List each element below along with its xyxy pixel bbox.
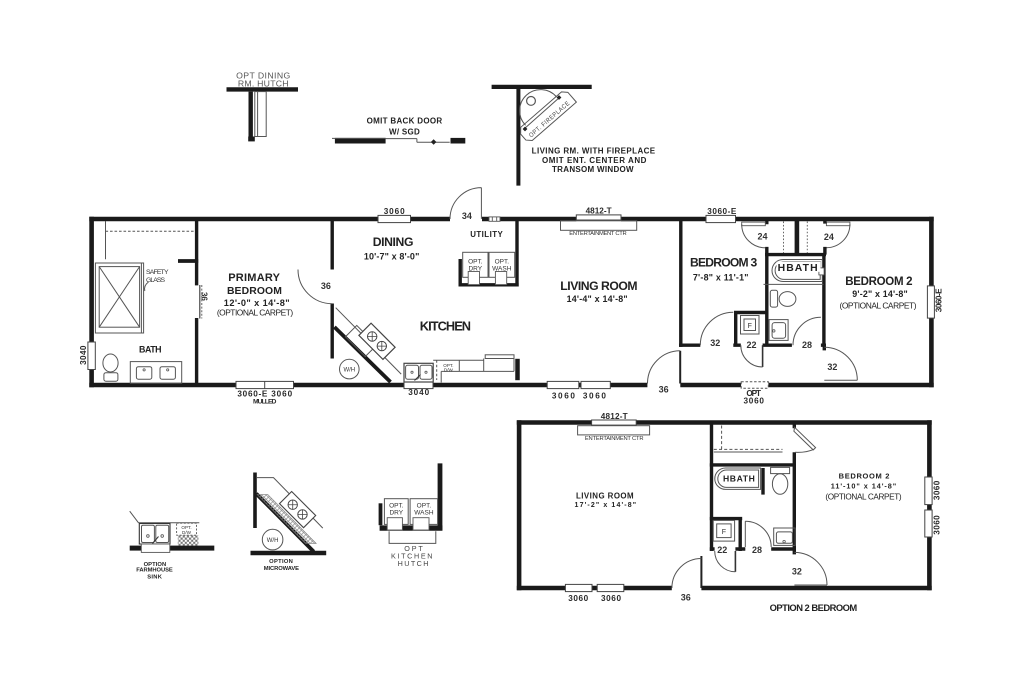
svg-text:DINING: DINING (373, 235, 414, 249)
svg-text:BEDROOM 2: BEDROOM 2 (845, 276, 913, 288)
svg-text:LIVING ROOM: LIVING ROOM (576, 491, 634, 500)
svg-text:OPTION 2 BEDROOM: OPTION 2 BEDROOM (770, 602, 858, 613)
svg-text:3060: 3060 (932, 480, 941, 500)
svg-text:36: 36 (321, 281, 331, 291)
svg-text:HUTCH: HUTCH (398, 559, 429, 568)
svg-text:LIVING RM. WITH FIREPLACE: LIVING RM. WITH FIREPLACE (532, 146, 656, 155)
svg-text:OPT.: OPT. (495, 259, 510, 266)
svg-text:OPT.: OPT. (417, 503, 432, 510)
svg-text:3060: 3060 (552, 391, 575, 400)
svg-text:DRY: DRY (389, 510, 403, 517)
svg-text:(OPTIONAL CARPET): (OPTIONAL CARPET) (840, 301, 917, 311)
svg-text:3060-E: 3060-E (237, 390, 268, 399)
svg-text:GLASS: GLASS (146, 277, 165, 284)
svg-text:28: 28 (802, 340, 812, 350)
svg-text:SINK: SINK (147, 574, 163, 580)
svg-text:(OPTIONAL CARPET): (OPTIONAL CARPET) (217, 308, 294, 318)
svg-text:SAFETY: SAFETY (146, 269, 169, 276)
svg-text:OPTION: OPTION (269, 559, 293, 565)
svg-text:32: 32 (827, 362, 837, 372)
svg-text:ENTERTAINMENT CTR: ENTERTAINMENT CTR (569, 231, 626, 237)
svg-text:F: F (748, 323, 752, 330)
svg-text:3060: 3060 (583, 391, 606, 400)
svg-text:BATH: BATH (139, 345, 162, 355)
svg-text:KITCHEN: KITCHEN (420, 319, 472, 334)
svg-text:OPT.: OPT. (468, 259, 483, 266)
svg-text:UTILITY: UTILITY (470, 230, 503, 239)
svg-text:17'-2" x 14'-8": 17'-2" x 14'-8" (575, 502, 637, 509)
svg-text:3060: 3060 (601, 594, 621, 603)
svg-text:F: F (722, 529, 726, 536)
svg-text:28: 28 (752, 545, 762, 555)
svg-text:3040: 3040 (79, 345, 88, 365)
svg-text:HBATH: HBATH (778, 263, 818, 274)
svg-text:WASH: WASH (414, 510, 434, 517)
svg-text:BEDROOM 3: BEDROOM 3 (690, 256, 758, 270)
svg-text:TRANSOM WINDOW: TRANSOM WINDOW (552, 165, 634, 174)
svg-text:22: 22 (717, 545, 727, 555)
svg-text:ENTERTAINMENT CTR: ENTERTAINMENT CTR (585, 436, 644, 442)
svg-text:34: 34 (462, 211, 472, 221)
svg-text:32: 32 (710, 338, 720, 348)
svg-text:MICROWAVE: MICROWAVE (264, 566, 299, 572)
svg-text:3060: 3060 (743, 396, 764, 405)
svg-text:W/ SGD: W/ SGD (389, 127, 420, 136)
svg-text:OMIT BACK DOOR: OMIT BACK DOOR (367, 116, 443, 125)
svg-text:LIVING ROOM: LIVING ROOM (560, 279, 638, 293)
svg-text:24: 24 (824, 232, 834, 242)
svg-text:36: 36 (659, 384, 669, 394)
svg-text:OMIT ENT. CENTER AND: OMIT ENT. CENTER AND (542, 156, 647, 165)
svg-text:D/W: D/W (182, 530, 192, 535)
svg-text:RM. HUTCH: RM. HUTCH (238, 78, 289, 88)
svg-text:9'-2" x 14'-8": 9'-2" x 14'-8" (852, 289, 907, 299)
svg-text:24: 24 (757, 232, 767, 242)
svg-text:BEDROOM 2: BEDROOM 2 (839, 472, 890, 481)
svg-text:W/H: W/H (343, 367, 355, 373)
svg-text:7'-8" x 11'-1": 7'-8" x 11'-1" (693, 272, 749, 282)
svg-text:32: 32 (792, 567, 802, 577)
svg-text:OPT.: OPT. (389, 503, 404, 510)
svg-text:3060-E: 3060-E (707, 207, 737, 216)
svg-text:BEDROOM: BEDROOM (227, 286, 282, 297)
svg-text:4812-T: 4812-T (601, 412, 628, 421)
svg-text:MULLED: MULLED (253, 399, 277, 406)
svg-text:3060-E: 3060-E (934, 288, 943, 312)
svg-text:(OPTIONAL CARPET): (OPTIONAL CARPET) (825, 493, 901, 502)
svg-text:HBATH: HBATH (723, 474, 755, 484)
svg-text:W/H: W/H (267, 538, 279, 544)
svg-text:PRIMARY: PRIMARY (228, 272, 280, 284)
svg-text:D/W: D/W (444, 368, 454, 373)
svg-text:36: 36 (681, 592, 691, 602)
svg-text:3060: 3060 (384, 207, 405, 216)
svg-text:12'-0" x 14'-8": 12'-0" x 14'-8" (224, 298, 290, 308)
svg-text:10'-7" x 8'-0": 10'-7" x 8'-0" (364, 251, 420, 261)
svg-text:36: 36 (199, 292, 208, 301)
svg-text:22: 22 (746, 340, 756, 350)
svg-text:3060: 3060 (271, 390, 292, 399)
svg-text:3040: 3040 (408, 388, 429, 397)
svg-text:3060: 3060 (932, 515, 941, 535)
svg-text:4812-T: 4812-T (586, 207, 612, 216)
svg-text:11'-10" x 14'-8": 11'-10" x 14'-8" (831, 481, 897, 490)
svg-text:14'-4" x 14'-8": 14'-4" x 14'-8" (567, 294, 628, 304)
svg-text:FARMHOUSE: FARMHOUSE (136, 568, 173, 574)
svg-text:3060: 3060 (568, 594, 588, 603)
